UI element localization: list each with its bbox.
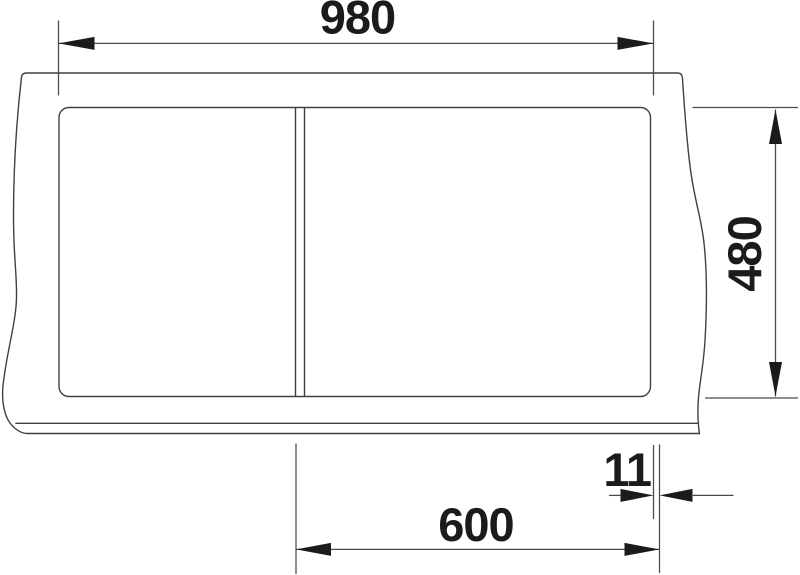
technical-drawing-canvas: 980 480 600 11: [0, 0, 800, 575]
worktop-outline-with-break-lines: [3, 73, 707, 434]
dim-600-arrow-left: [296, 543, 331, 556]
dimension-980: 980: [59, 0, 654, 96]
dim-11-arrow-right: [660, 489, 693, 502]
dim-980-arrow-right: [618, 37, 654, 50]
dim-600-label: 600: [438, 498, 513, 551]
dim-480-arrow-up: [769, 110, 782, 145]
dimension-11: 11: [603, 443, 733, 519]
dimension-drawing-svg: 980 480 600 11: [0, 0, 800, 575]
dim-980-label: 980: [320, 0, 395, 44]
worktop: [3, 73, 707, 434]
sink: [59, 108, 651, 397]
dim-480-arrow-down: [769, 362, 782, 397]
dim-11-label: 11: [603, 443, 651, 496]
dim-480-label: 480: [718, 216, 771, 291]
sink-rim-outline: [59, 108, 651, 397]
dimension-480: 480: [693, 108, 799, 399]
dim-600-arrow-right: [625, 543, 660, 556]
dim-980-arrow-left: [59, 37, 95, 50]
